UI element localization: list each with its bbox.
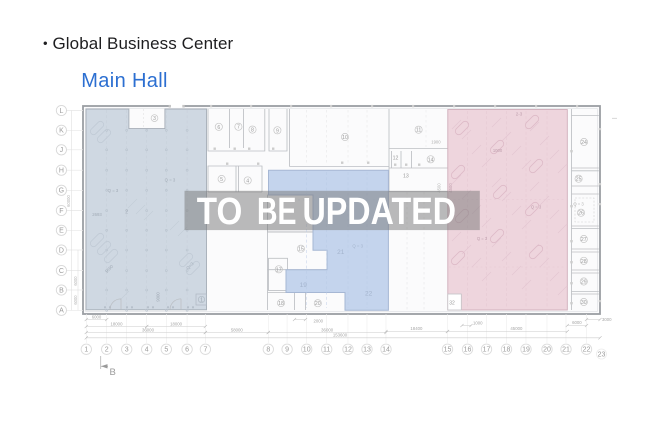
svg-text:18: 18 (278, 301, 284, 307)
svg-text:C: C (59, 268, 64, 275)
svg-text:1: 1 (200, 298, 203, 304)
svg-text:TO: TO (197, 191, 243, 233)
svg-text:F: F (59, 208, 63, 215)
svg-text:17: 17 (483, 347, 491, 354)
svg-text:26: 26 (578, 211, 584, 217)
svg-text:6000: 6000 (73, 295, 78, 305)
svg-text:18000: 18000 (111, 321, 124, 326)
svg-text:K: K (59, 128, 64, 135)
svg-text:B: B (110, 367, 116, 378)
svg-text:4: 4 (145, 347, 149, 354)
svg-text:29: 29 (581, 280, 587, 286)
svg-text:Q = 3: Q = 3 (531, 205, 542, 210)
svg-text:6: 6 (217, 125, 220, 131)
svg-text:BE: BE (257, 191, 297, 233)
svg-text:9: 9 (276, 128, 279, 134)
svg-text:B: B (59, 287, 64, 294)
svg-text:7: 7 (203, 347, 207, 354)
svg-text:13: 13 (363, 347, 371, 354)
svg-text:Q = 3: Q = 3 (165, 178, 176, 183)
svg-text:E: E (59, 228, 64, 235)
svg-text:21: 21 (562, 347, 570, 354)
svg-text:12: 12 (344, 347, 352, 354)
svg-text:2: 2 (125, 210, 128, 216)
svg-text:18400: 18400 (410, 326, 423, 331)
svg-text:3: 3 (153, 116, 156, 122)
svg-text:1900: 1900 (431, 140, 441, 145)
svg-text:3000: 3000 (602, 317, 612, 322)
svg-text:45000: 45000 (510, 326, 523, 331)
svg-text:19: 19 (522, 347, 530, 354)
svg-text:2-3: 2-3 (516, 112, 523, 117)
svg-text:D: D (59, 247, 64, 254)
svg-text:Q = 3: Q = 3 (477, 236, 488, 241)
svg-text:9: 9 (285, 347, 289, 354)
svg-text:2693: 2693 (92, 212, 102, 217)
svg-text:3: 3 (125, 347, 129, 354)
svg-text:8: 8 (266, 347, 270, 354)
svg-text:8: 8 (251, 128, 254, 134)
svg-text:2000: 2000 (314, 319, 324, 324)
svg-text:6000: 6000 (572, 320, 582, 325)
svg-text:Q = 3: Q = 3 (352, 244, 363, 249)
svg-text:24: 24 (581, 140, 587, 146)
svg-text:21: 21 (337, 249, 345, 256)
svg-text:J: J (60, 147, 64, 154)
svg-text:25: 25 (576, 177, 582, 183)
svg-text:G: G (59, 188, 64, 195)
svg-text:20: 20 (315, 301, 321, 307)
svg-text:10: 10 (303, 347, 311, 354)
svg-text:L: L (59, 108, 63, 115)
svg-text:28: 28 (581, 259, 587, 265)
svg-text:2: 2 (105, 347, 109, 354)
svg-text:H: H (59, 168, 64, 175)
svg-text:36000: 36000 (321, 327, 334, 332)
svg-text:16: 16 (464, 347, 472, 354)
svg-text:11: 11 (416, 128, 421, 134)
svg-text:23: 23 (598, 352, 606, 359)
svg-text:1: 1 (84, 347, 88, 354)
svg-text:5: 5 (164, 347, 168, 354)
svg-text:27: 27 (581, 237, 587, 243)
svg-text:A: A (59, 308, 64, 315)
svg-text:9000: 9000 (156, 292, 161, 302)
svg-text:20: 20 (543, 347, 551, 354)
svg-text:153600: 153600 (333, 333, 348, 338)
svg-text:5: 5 (220, 177, 223, 183)
svg-text:4: 4 (246, 178, 249, 184)
svg-text:10: 10 (342, 135, 348, 141)
svg-text:14: 14 (428, 157, 434, 163)
svg-text:6: 6 (185, 347, 189, 354)
svg-text:30: 30 (581, 300, 587, 306)
svg-text:22: 22 (583, 347, 591, 354)
svg-text:22: 22 (365, 291, 373, 298)
svg-text:1000: 1000 (493, 148, 503, 153)
svg-text:60000: 60000 (66, 195, 71, 207)
svg-text:18: 18 (503, 347, 511, 354)
svg-text:15: 15 (444, 347, 452, 354)
svg-text:32: 32 (449, 301, 455, 307)
svg-text:Q = 3: Q = 3 (573, 202, 584, 207)
svg-text:6000: 6000 (92, 314, 102, 319)
svg-text:11: 11 (323, 347, 330, 354)
svg-text:15: 15 (298, 247, 304, 253)
svg-text:12: 12 (393, 156, 399, 162)
svg-text:58000: 58000 (231, 327, 244, 332)
svg-text:36000: 36000 (142, 327, 155, 332)
svg-text:13: 13 (403, 174, 409, 180)
svg-text:7: 7 (237, 125, 240, 131)
svg-text:14: 14 (382, 347, 390, 354)
svg-text:19: 19 (300, 282, 308, 289)
svg-text:1000: 1000 (473, 320, 483, 325)
svg-text:18000: 18000 (170, 321, 183, 326)
svg-text:Q = 3: Q = 3 (108, 188, 119, 193)
svg-text:6000: 6000 (73, 276, 78, 286)
svg-text:UPDATED: UPDATED (303, 191, 457, 233)
svg-text:17: 17 (276, 267, 282, 273)
